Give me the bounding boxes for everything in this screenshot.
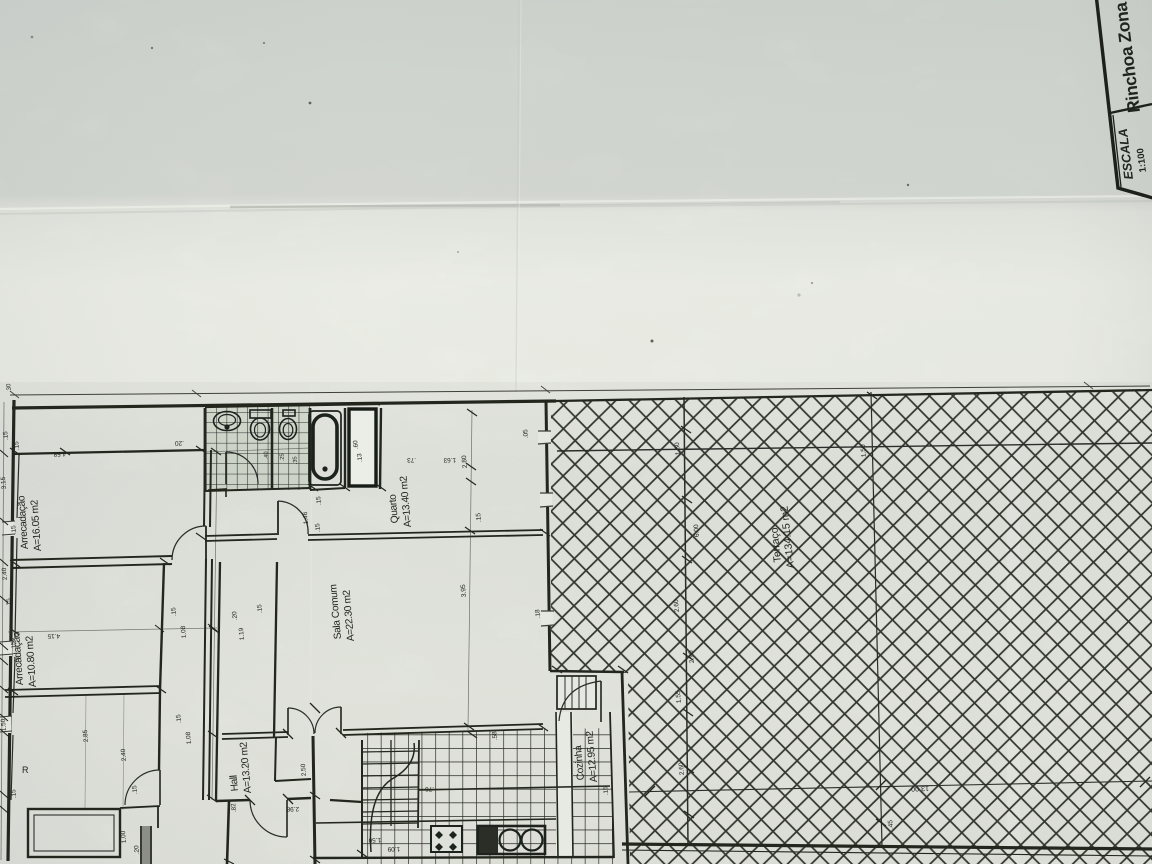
- svg-text:2.40: 2.40: [1, 567, 9, 580]
- svg-text:.15: .15: [5, 598, 13, 608]
- svg-text:.82: .82: [230, 803, 238, 813]
- svg-text:.20: .20: [174, 439, 184, 446]
- svg-text:1.09: 1.09: [387, 845, 400, 852]
- svg-text:3.95: 3.95: [460, 584, 468, 598]
- svg-text:4.58: 4.58: [53, 450, 66, 457]
- svg-text:1.46: 1.46: [302, 511, 310, 524]
- svg-text:.15: .15: [2, 431, 10, 441]
- svg-text:Hall: Hall: [229, 775, 241, 792]
- svg-text:.15: .15: [256, 604, 264, 614]
- svg-text:.30: .30: [5, 383, 13, 393]
- svg-text:.25: .25: [279, 453, 286, 461]
- svg-text:.15: .15: [13, 441, 21, 451]
- svg-text:2.50: 2.50: [300, 763, 308, 776]
- svg-text:1.08: 1.08: [185, 731, 193, 744]
- svg-text:1.00: 1.00: [120, 830, 128, 843]
- svg-text:.76: .76: [425, 785, 435, 792]
- svg-text:2.40: 2.40: [120, 748, 128, 761]
- svg-text:.05: .05: [522, 429, 530, 439]
- svg-text:2.80: 2.80: [461, 455, 469, 469]
- svg-text:1.63: 1.63: [443, 456, 456, 463]
- svg-text:.61: .61: [13, 655, 21, 665]
- svg-text:.15: .15: [10, 789, 18, 799]
- svg-text:.15: .15: [10, 525, 18, 535]
- svg-text:3.15: 3.15: [0, 476, 8, 489]
- svg-text:R: R: [22, 765, 29, 775]
- svg-text:.20: .20: [133, 845, 141, 855]
- svg-text:1.50: 1.50: [368, 836, 381, 843]
- svg-text:.18: .18: [534, 609, 542, 619]
- svg-text:.58: .58: [491, 731, 499, 741]
- svg-text:1.50: 1.50: [0, 718, 8, 731]
- svg-text:.35: .35: [292, 456, 299, 464]
- svg-text:.73: .73: [407, 456, 417, 463]
- svg-text:.15: .15: [475, 512, 483, 522]
- svg-text:1.55: 1.55: [675, 690, 683, 704]
- svg-text:.60: .60: [352, 440, 360, 450]
- svg-text:1.08: 1.08: [180, 625, 188, 638]
- svg-text:4.15: 4.15: [47, 632, 60, 639]
- svg-text:2.98: 2.98: [286, 805, 299, 812]
- svg-text:2.60: 2.60: [678, 762, 686, 776]
- svg-text:13.00: 13.00: [911, 784, 929, 794]
- svg-text:.20: .20: [231, 611, 239, 621]
- svg-text:6.00: 6.00: [693, 524, 701, 538]
- svg-text:.13: .13: [356, 453, 364, 463]
- svg-text:2.90: 2.90: [688, 650, 696, 664]
- svg-text:2.60: 2.60: [673, 599, 681, 613]
- svg-text:.15: .15: [315, 496, 323, 506]
- svg-text:.40: .40: [263, 451, 270, 459]
- svg-text:.15: .15: [314, 523, 322, 533]
- svg-text:.45: .45: [887, 819, 895, 829]
- svg-text:.15: .15: [175, 714, 183, 724]
- svg-text:.15: .15: [131, 785, 139, 795]
- svg-text:.15: .15: [170, 607, 178, 617]
- svg-text:1.50: 1.50: [674, 442, 682, 456]
- svg-text:1.50: 1.50: [860, 444, 868, 458]
- svg-text:2.85: 2.85: [82, 729, 90, 742]
- svg-text:.15: .15: [10, 641, 18, 651]
- svg-text:.15: .15: [602, 786, 610, 796]
- svg-text:1.19: 1.19: [238, 627, 246, 640]
